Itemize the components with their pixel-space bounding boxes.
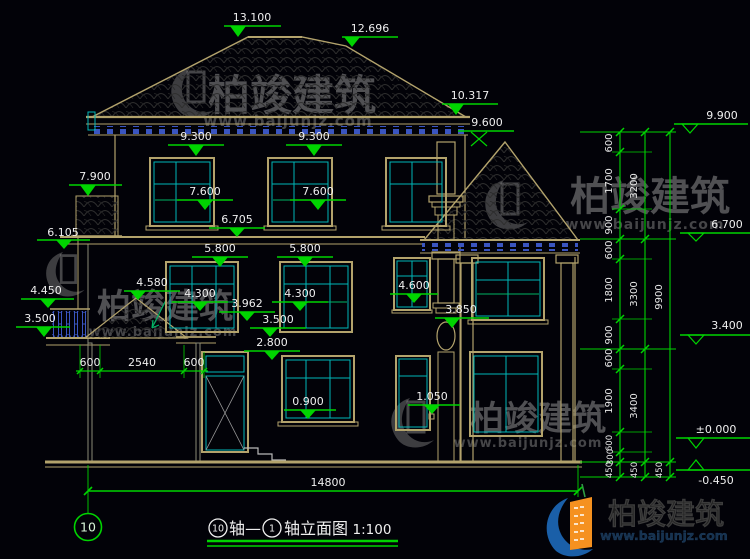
- elevation-value: 6.705: [221, 213, 253, 226]
- elevation-marker-9600: 9.600: [458, 116, 514, 146]
- elevation-value: 3.500: [262, 313, 294, 326]
- elevation-value: 9.300: [298, 130, 330, 143]
- dim-value: 14800: [311, 476, 346, 489]
- elevation-value: 3.962: [231, 297, 263, 310]
- elevation-value: 5.800: [204, 242, 236, 255]
- title-axis-start: 10: [212, 524, 224, 535]
- logo-brand-text: 柏竣建筑: [608, 497, 724, 531]
- elevation-value: 4.300: [284, 287, 316, 300]
- elevation-value: 4.450: [30, 284, 62, 297]
- elevation-value: 6.105: [47, 226, 79, 239]
- elevation-value: ±0.000: [696, 423, 737, 436]
- dim-value: 600: [604, 133, 615, 152]
- dim-value: 2540: [128, 356, 156, 369]
- dim-value: 3200: [629, 173, 640, 198]
- elevation-value: 0.900: [292, 395, 324, 408]
- dim-value: 3400: [629, 393, 640, 418]
- slab-band: [60, 237, 425, 244]
- elevation-value: 7.600: [189, 185, 221, 198]
- cad-elevation-drawing: 柏竣建筑 www.baijunjz.com 柏竣建筑 www.baijunjz.…: [0, 0, 750, 559]
- axis-number: 10: [80, 520, 96, 535]
- elevation-marker-7600-right: 7.600: [290, 185, 346, 210]
- entry-door: [202, 352, 248, 452]
- elevation-marker-0000: ±0.000: [676, 423, 750, 448]
- logo-antenna-icon: [582, 484, 585, 497]
- elevation-value: 9.600: [471, 116, 503, 129]
- elevation-value: 7.900: [79, 170, 111, 183]
- elevation-value: 1.050: [416, 390, 448, 403]
- dim-value: 450: [655, 462, 665, 478]
- main-roof: [92, 37, 466, 117]
- entry-steps: [244, 448, 286, 460]
- dim-value: 600: [80, 356, 101, 369]
- title-scale: 1:100: [353, 522, 392, 538]
- dim-value: 1800: [604, 277, 615, 302]
- elevation-value: 9.300: [180, 130, 212, 143]
- elevation-value: 12.696: [351, 22, 390, 35]
- elevation-marker-7900: 7.900: [69, 170, 122, 196]
- title-axis-end: 1: [269, 524, 275, 535]
- dim-total-width: 14800: [84, 465, 582, 513]
- dim-value: 450: [630, 462, 640, 478]
- elevation-value: 13.100: [233, 11, 272, 24]
- elevation-marker-7600-left: 7.600: [177, 185, 233, 210]
- elevation-value: 3.500: [24, 312, 56, 325]
- ground-line: [45, 462, 582, 467]
- elevation-value: 5.800: [289, 242, 321, 255]
- watermark-brand: 柏竣建筑: [570, 174, 730, 220]
- elevation-marker-6705: 6.705: [209, 213, 265, 237]
- elevation-value: 7.600: [302, 185, 334, 198]
- elevation-value: 4.600: [398, 279, 430, 292]
- dim-value: 1900: [604, 388, 615, 413]
- dim-chain-porch: 600 2540 600: [76, 345, 208, 378]
- dim-value: 900: [604, 325, 615, 344]
- elevation-marker-9900: 9.900: [674, 109, 748, 133]
- elevation-marker-3500-center: 3.500: [250, 313, 306, 337]
- right-dim-labels-outer: 9900 450: [654, 284, 665, 478]
- dim-value: 9900: [654, 284, 665, 309]
- elevation-value: 3.400: [711, 319, 743, 332]
- dim-value: 600: [604, 240, 615, 259]
- elevation-value: 3.850: [445, 303, 477, 316]
- elevation-marker-0900: 0.900: [284, 395, 336, 419]
- axis-bubble-10: 10: [75, 514, 102, 541]
- watermark-bottom-center: 柏竣建筑 www.baijunjz.com: [391, 398, 606, 451]
- watermark-url: www.baijunjz.com: [454, 436, 603, 451]
- elevation-value: -0.450: [698, 474, 733, 487]
- dim-value: 600: [604, 348, 615, 367]
- dim-value: 600: [605, 435, 615, 451]
- dim-value: 900: [604, 215, 615, 234]
- elevation-marker-13100: 13.100: [224, 11, 281, 37]
- dim-value: 1700: [604, 168, 615, 193]
- elevation-canvas: 柏竣建筑 www.baijunjz.com 柏竣建筑 www.baijunjz.…: [0, 0, 750, 559]
- elevation-marker-1050: 1.050: [408, 390, 460, 419]
- title-text: 轴立面图: [284, 519, 348, 538]
- elevation-value: 4.300: [184, 287, 216, 300]
- elevation-value: 10.317: [451, 89, 490, 102]
- elevation-value: 6.700: [711, 218, 743, 231]
- elevation-marker-12696: 12.696: [342, 22, 398, 47]
- dim-value: 3300: [629, 281, 640, 306]
- elevation-value: 4.580: [136, 276, 168, 289]
- elevation-marker-3400: 3.400: [680, 319, 750, 344]
- elevation-value: 9.900: [706, 109, 738, 122]
- title-text: 轴—: [229, 519, 261, 538]
- window-2f-wing: [468, 258, 548, 324]
- dim-value: 600: [184, 356, 205, 369]
- elevation-marker-5800-right: 5.800: [277, 242, 333, 267]
- dim-value: 450: [605, 462, 615, 478]
- company-logo: 柏竣建筑 www.baijunjz.com: [547, 484, 728, 556]
- elevation-marker-minus0450: -0.450: [676, 460, 750, 487]
- elevation-value: 2.800: [256, 336, 288, 349]
- logo-url-text: www.baijunjz.com: [600, 528, 728, 543]
- elevation-marker-5800-left: 5.800: [192, 242, 248, 267]
- window-1f-1: [278, 356, 358, 426]
- drawing-title: 10 轴— 1 轴立面图 1:100: [207, 519, 398, 546]
